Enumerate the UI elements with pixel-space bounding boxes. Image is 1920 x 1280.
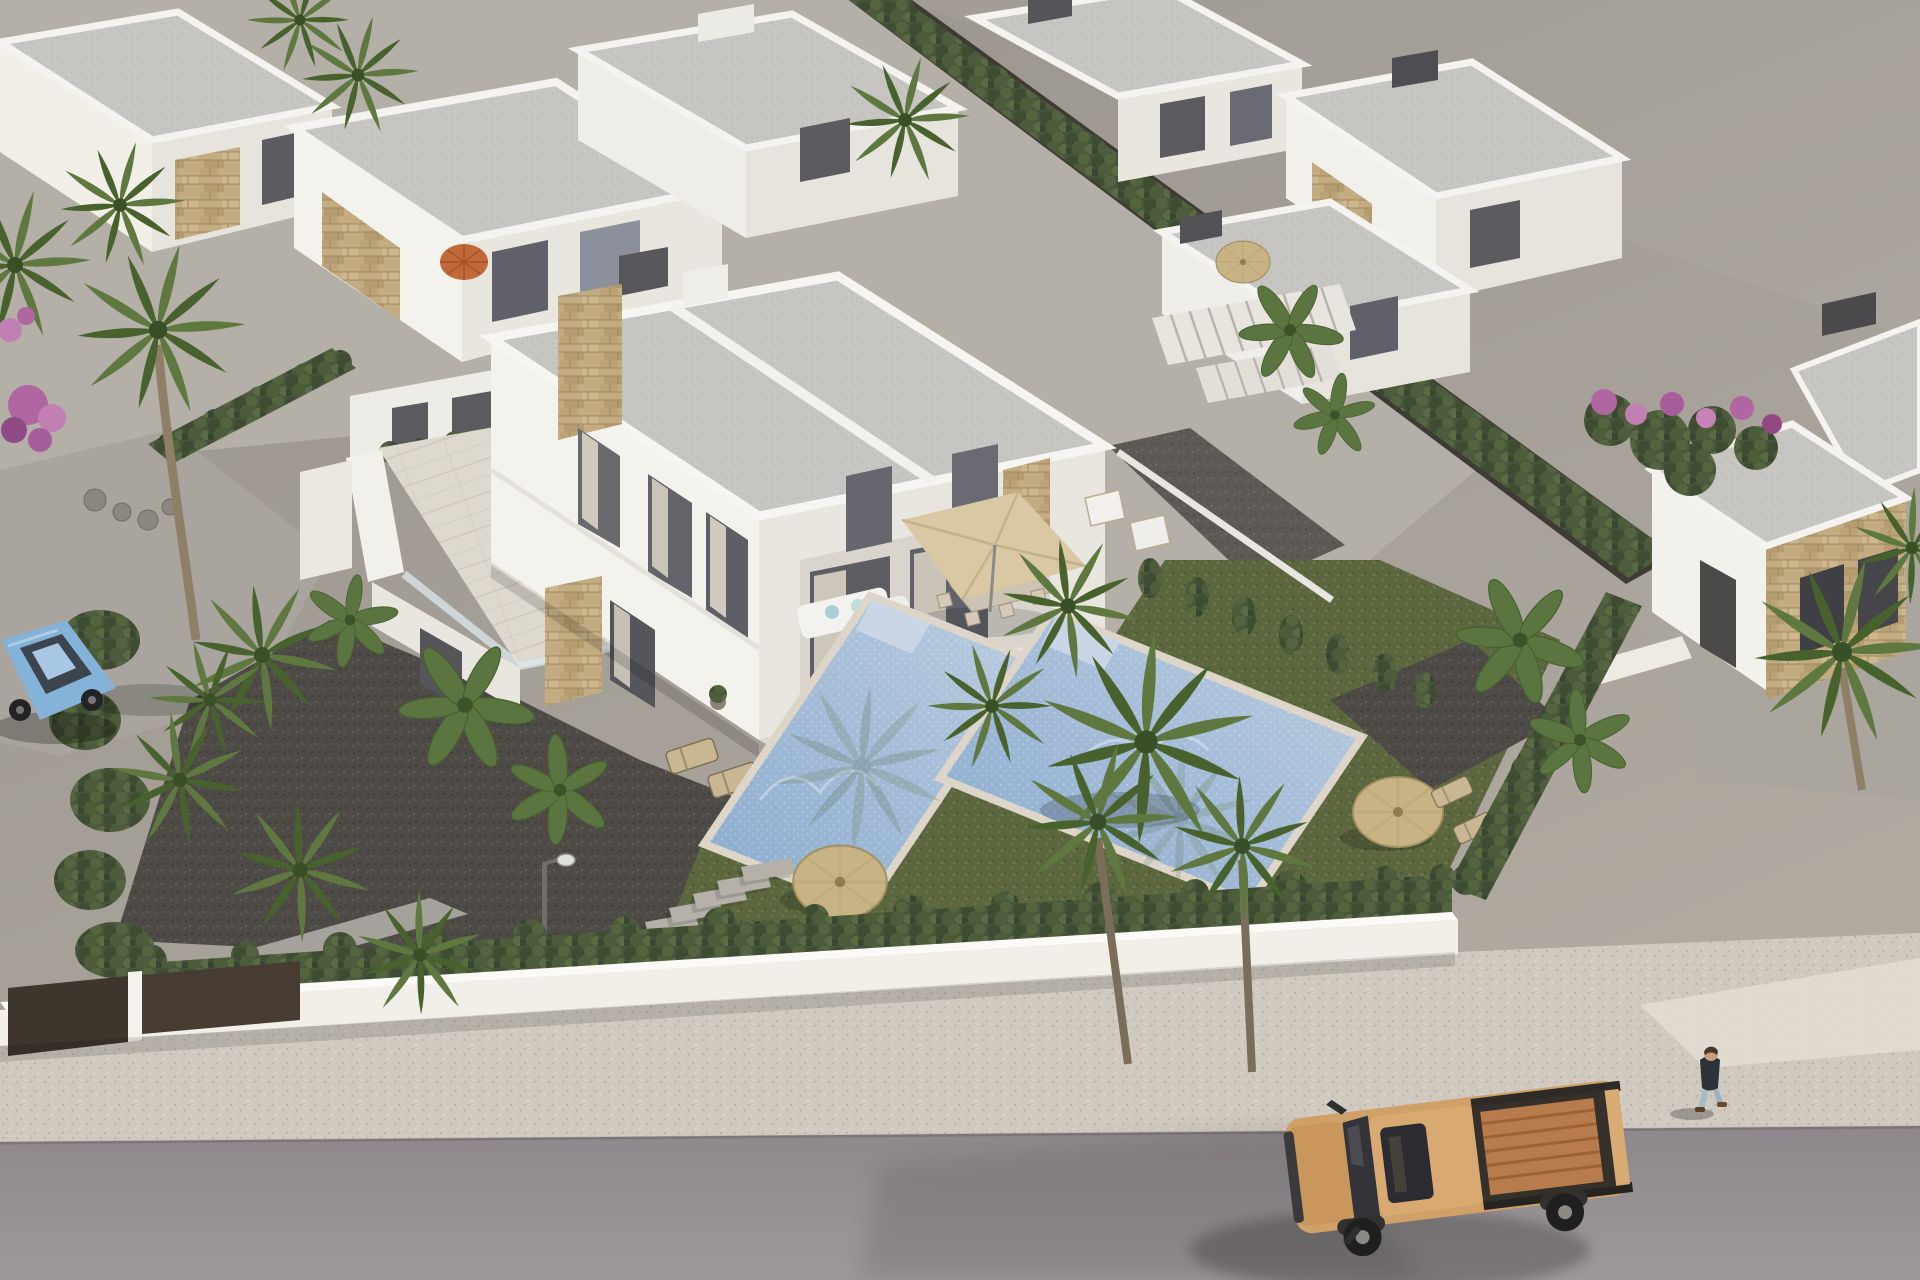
- window: [800, 118, 850, 182]
- straw-parasol-small: [1216, 241, 1270, 283]
- orange-umbrella: [440, 244, 488, 280]
- render-image: Aerial 3D render of a modern white villa…: [0, 0, 1920, 1280]
- garden-wall-stub: [300, 460, 352, 580]
- stone-accent: [175, 147, 240, 240]
- stone-parapet: [558, 284, 622, 440]
- window: [1230, 84, 1272, 146]
- truck-sunroof: [1379, 1123, 1434, 1204]
- window: [1350, 296, 1398, 360]
- window: [1160, 96, 1205, 158]
- shoe: [1695, 1107, 1705, 1112]
- shoe: [1717, 1102, 1727, 1107]
- scene-canvas: [0, 0, 1920, 1280]
- window: [1470, 200, 1520, 268]
- gate-pillar: [128, 971, 142, 1042]
- window: [492, 240, 548, 322]
